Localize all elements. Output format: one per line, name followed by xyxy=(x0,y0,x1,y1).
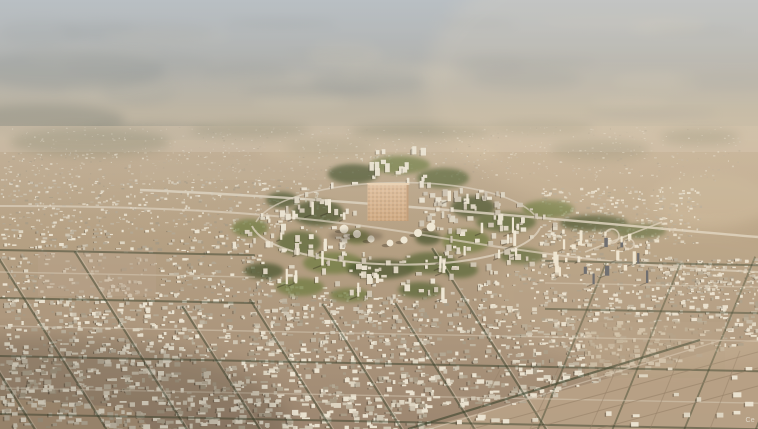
watermark-credit: Ce xyxy=(745,417,755,424)
aerial-cityscape-render: Ce xyxy=(0,0,758,429)
scene-canvas xyxy=(0,0,758,429)
